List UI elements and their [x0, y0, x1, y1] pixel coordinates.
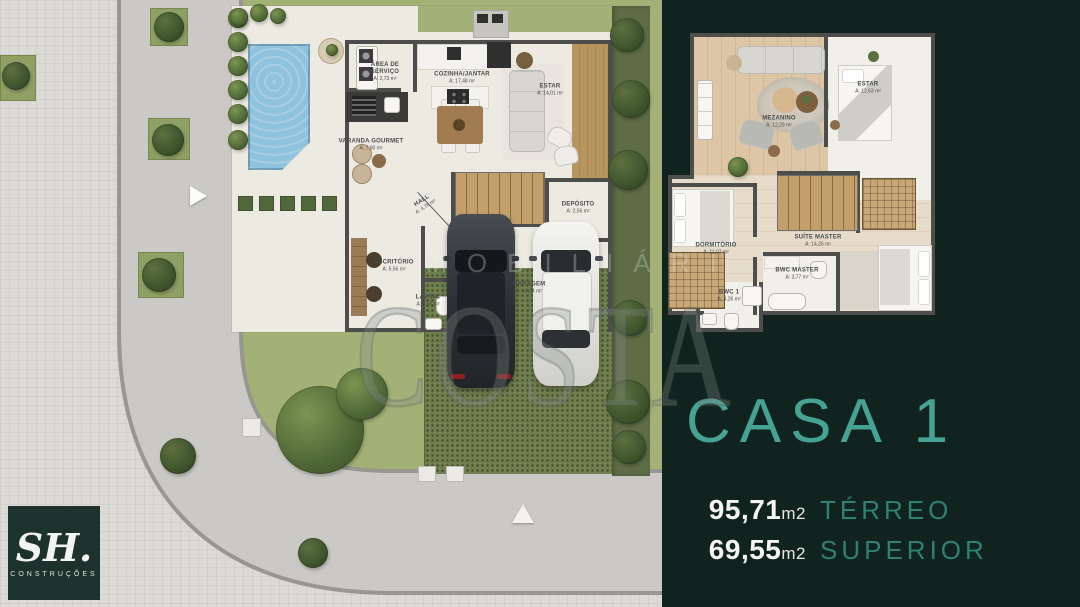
room-name: MEZANINO	[762, 115, 796, 121]
wall	[836, 252, 840, 315]
wardrobe	[862, 178, 916, 230]
room-name: DEPÓSITO	[562, 201, 595, 207]
hedge-tree	[610, 18, 644, 52]
hedge-tree	[608, 150, 648, 190]
bush	[230, 8, 248, 26]
room-label-estar-superior: ESTAR A: 12,63 m²	[855, 81, 881, 94]
pouf	[772, 87, 798, 113]
room-name: SUÍTE MASTER	[794, 234, 841, 240]
watermark-costa: COSTA	[356, 272, 737, 440]
swimming-pool	[248, 44, 310, 170]
room-label-suite-master: SUÍTE MASTER A: 14,26 m²	[794, 234, 841, 247]
room-name: ESTAR	[858, 81, 879, 87]
room-label-area-servico: ÁREA DE SERVIÇO A: 2,73 m²	[365, 62, 405, 82]
plant	[802, 95, 811, 104]
room-label-estar: ESTAR A: 14,01 m²	[537, 83, 563, 96]
logo-subtitle: CONSTRUÇÕES	[10, 571, 97, 578]
pillow	[918, 279, 930, 305]
palm-tree	[228, 32, 248, 52]
side-table	[372, 154, 386, 168]
room-label-deposito: DEPÓSITO A: 2,56 m²	[562, 201, 595, 214]
room-area: A: 3,77 m²	[775, 275, 818, 281]
bush	[270, 8, 286, 24]
wall	[753, 187, 757, 237]
terreo-area-label: TÉRREO	[820, 495, 988, 526]
rug	[840, 251, 878, 309]
wall	[668, 183, 757, 187]
rattan-pouf	[516, 52, 533, 69]
room-label-cozinha-jantar: COZINHA/JANTAR A: 17,48 m²	[434, 71, 490, 84]
shelf	[697, 80, 713, 140]
room-area: A: 17,48 m²	[434, 79, 490, 85]
presentation-slide: ÁREA DE SERVIÇO A: 2,73 m² COZINHA/JANTA…	[0, 0, 1080, 607]
palm-tree	[228, 80, 248, 100]
room-area: A: 2,56 m²	[562, 209, 595, 215]
logo-initials: SH.	[16, 529, 93, 567]
room-name: ESTAR	[540, 83, 561, 89]
street-tree	[2, 62, 30, 90]
stepping-stone	[242, 418, 261, 437]
superior-area-label: SUPERIOR	[820, 535, 988, 566]
wall	[549, 178, 612, 182]
bathtub-icon	[768, 293, 806, 310]
wall	[608, 40, 612, 242]
wall	[759, 311, 935, 315]
room-area: A: 2,73 m²	[365, 76, 405, 82]
kitchen-sink-icon	[447, 47, 461, 60]
sofa	[737, 46, 825, 74]
driveway-entry-arrow-icon	[512, 504, 534, 523]
area-unit: m2	[781, 544, 806, 563]
street-tree	[154, 12, 184, 42]
bush	[250, 4, 268, 22]
blanket	[880, 249, 910, 305]
palm-tree	[228, 56, 248, 76]
gate-post	[418, 466, 436, 482]
wall	[690, 33, 694, 179]
room-area: A: 7,90 m²	[339, 146, 404, 152]
pillow	[918, 251, 930, 277]
shower-icon	[742, 286, 762, 306]
hedge-tree	[612, 80, 650, 118]
superior-area-value: 69,55m2	[709, 534, 806, 566]
planter-box	[280, 196, 295, 211]
terreo-area-value: 95,71m2	[709, 494, 806, 526]
cooktop-icon	[447, 89, 469, 104]
street-tree	[152, 124, 184, 156]
room-name: VARANDA GOURMET	[339, 138, 404, 144]
street-tree	[160, 438, 196, 474]
room-label-bwc-master: BWC MASTER A: 3,77 m²	[775, 267, 818, 280]
fridge	[487, 42, 511, 68]
indoor-plant	[728, 157, 748, 177]
area-summary: 95,71m2 TÉRREO 69,55m2 SUPERIOR	[688, 494, 988, 566]
outdoor-sink-icon	[477, 14, 488, 23]
builder-logo: SH. CONSTRUÇÕES	[8, 506, 100, 600]
room-area: A: 12,63 m²	[855, 89, 881, 95]
bbq-sink	[384, 97, 400, 113]
room-area: A: 14,01 m²	[537, 91, 563, 97]
street-tree	[298, 538, 328, 568]
staircase-upper	[777, 175, 858, 231]
palm-tree	[228, 104, 248, 124]
table-centerpiece	[453, 119, 465, 131]
room-area: A: 12,29 m²	[762, 123, 796, 129]
room-name: ÁREA DE SERVIÇO	[371, 62, 399, 75]
pouf	[726, 55, 742, 71]
side-table	[830, 120, 840, 130]
outdoor-grill-icon	[492, 14, 503, 23]
plant	[868, 51, 879, 62]
room-label-mezanino: MEZANINO A: 12,29 m²	[762, 115, 796, 128]
room-label-varanda-gourmet: VARANDA GOURMET A: 7,90 m²	[339, 138, 404, 151]
planter-box	[322, 196, 337, 211]
planter-box	[238, 196, 253, 211]
area-number: 69,55	[709, 534, 782, 565]
rattan-chair	[352, 164, 372, 184]
palm-tree	[228, 130, 248, 150]
side-table	[768, 145, 780, 157]
pillow	[674, 193, 686, 217]
area-number: 95,71	[709, 494, 782, 525]
room-area: A: 14,26 m²	[794, 242, 841, 248]
wall	[690, 33, 935, 37]
area-unit: m2	[781, 504, 806, 523]
street-direction-arrow-icon	[190, 186, 207, 206]
room-name: COZINHA/JANTAR	[434, 71, 490, 77]
pillow	[674, 219, 686, 243]
plant	[326, 44, 338, 56]
sofa	[509, 70, 545, 152]
grill-grate-icon	[352, 96, 376, 116]
wall	[345, 40, 349, 332]
gate-post	[446, 466, 464, 482]
blanket	[700, 191, 730, 243]
room-name: BWC MASTER	[775, 267, 818, 273]
planter-box	[301, 196, 316, 211]
planter-box	[259, 196, 274, 211]
street-tree	[142, 258, 176, 292]
